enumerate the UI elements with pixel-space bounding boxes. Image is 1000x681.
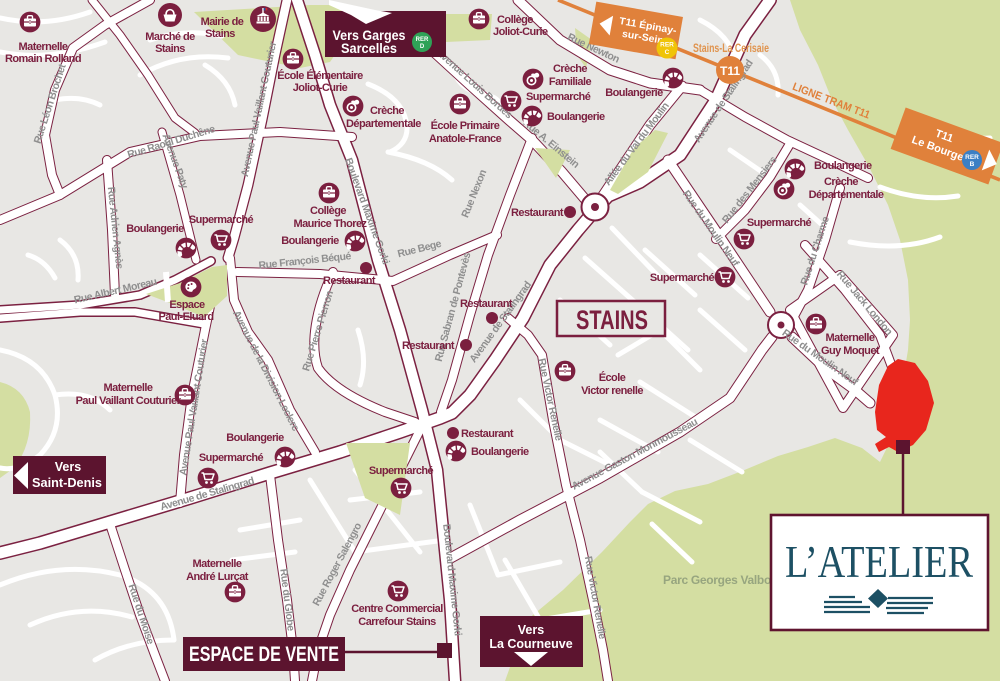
svg-text:Victor renelle: Victor renelle <box>581 385 643 397</box>
svg-text:Anatole-France: Anatole-France <box>429 133 502 145</box>
svg-text:Parc Georges Valbon: Parc Georges Valbon <box>663 573 778 587</box>
svg-text:Crèche: Crèche <box>824 176 858 188</box>
svg-text:Joliot-Curie: Joliot-Curie <box>293 82 348 94</box>
svg-text:Restaurant: Restaurant <box>511 207 564 219</box>
svg-text:Supermarché: Supermarché <box>747 217 812 229</box>
svg-text:Départementale: Départementale <box>346 118 421 130</box>
svg-text:RER: RER <box>660 42 674 49</box>
svg-text:Restaurant: Restaurant <box>402 340 455 352</box>
svg-text:L’ATELIER: L’ATELIER <box>785 536 973 587</box>
svg-text:Collège: Collège <box>497 14 533 26</box>
svg-text:Supermarché: Supermarché <box>189 214 254 226</box>
svg-text:École Élémentaire: École Élémentaire <box>277 69 363 82</box>
svg-text:Boulangerie: Boulangerie <box>471 446 529 458</box>
svg-text:RER: RER <box>965 154 979 161</box>
svg-text:Collège: Collège <box>310 205 346 217</box>
svg-text:École: École <box>599 371 626 384</box>
svg-text:Maurice Thorez: Maurice Thorez <box>294 218 368 230</box>
svg-text:École Primaire: École Primaire <box>431 119 500 132</box>
svg-text:B: B <box>970 161 975 168</box>
svg-text:Boulangerie: Boulangerie <box>814 160 872 172</box>
svg-text:Marché de: Marché de <box>145 31 195 43</box>
svg-text:C: C <box>665 49 670 56</box>
svg-text:Mairie de: Mairie de <box>201 16 244 28</box>
svg-text:Maternelle: Maternelle <box>19 41 68 53</box>
svg-text:Joliot-Curie: Joliot-Curie <box>493 26 548 38</box>
svg-text:Crèche: Crèche <box>553 63 587 75</box>
svg-text:Supermarché: Supermarché <box>369 465 434 477</box>
svg-text:Crèche: Crèche <box>370 105 404 117</box>
svg-text:Paul Vaillant Couturier: Paul Vaillant Couturier <box>76 395 182 407</box>
svg-text:STAINS: STAINS <box>576 305 648 335</box>
svg-text:Stains-La Cerisaie: Stains-La Cerisaie <box>693 43 769 55</box>
svg-text:La Courneuve: La Courneuve <box>489 637 572 651</box>
svg-text:André Lurçat: André Lurçat <box>186 571 249 583</box>
svg-text:Supermarché: Supermarché <box>199 452 264 464</box>
svg-text:ESPACE DE VENTE: ESPACE DE VENTE <box>189 643 339 666</box>
svg-text:Boulangerie: Boulangerie <box>226 432 284 444</box>
svg-text:Paul-Eluard: Paul-Eluard <box>158 311 213 323</box>
svg-text:T11: T11 <box>720 64 740 78</box>
svg-text:Restaurant: Restaurant <box>461 428 514 440</box>
svg-text:Maternelle: Maternelle <box>193 558 242 570</box>
svg-text:D: D <box>420 44 425 50</box>
svg-text:Départementale: Départementale <box>809 189 884 201</box>
svg-text:Saint-Denis: Saint-Denis <box>32 476 102 490</box>
svg-text:Maternelle: Maternelle <box>104 382 153 394</box>
svg-text:Carrefour Stains: Carrefour Stains <box>358 616 436 628</box>
svg-text:Boulangerie: Boulangerie <box>281 235 339 247</box>
svg-text:Boulangerie: Boulangerie <box>547 111 605 123</box>
svg-text:Stains: Stains <box>205 28 235 40</box>
svg-text:Restaurant: Restaurant <box>460 298 513 310</box>
svg-text:Vers: Vers <box>55 460 81 474</box>
svg-text:Supermarché: Supermarché <box>526 91 591 103</box>
svg-text:Supermarché: Supermarché <box>650 272 715 284</box>
svg-text:Sarcelles: Sarcelles <box>341 41 397 56</box>
svg-text:Restaurant: Restaurant <box>323 275 376 287</box>
svg-text:Boulangerie: Boulangerie <box>605 87 663 99</box>
svg-text:Stains: Stains <box>155 43 185 55</box>
svg-text:Guy Moquet: Guy Moquet <box>821 345 880 357</box>
svg-text:Centre Commercial: Centre Commercial <box>351 603 443 615</box>
svg-text:Vers: Vers <box>518 623 544 637</box>
svg-text:Maternelle: Maternelle <box>826 332 875 344</box>
svg-text:RER: RER <box>416 37 429 43</box>
svg-text:Familiale: Familiale <box>549 76 592 88</box>
svg-text:Romain Rolland: Romain Rolland <box>5 53 81 65</box>
svg-text:Espace: Espace <box>169 299 205 311</box>
svg-text:Boulangerie: Boulangerie <box>126 223 184 235</box>
